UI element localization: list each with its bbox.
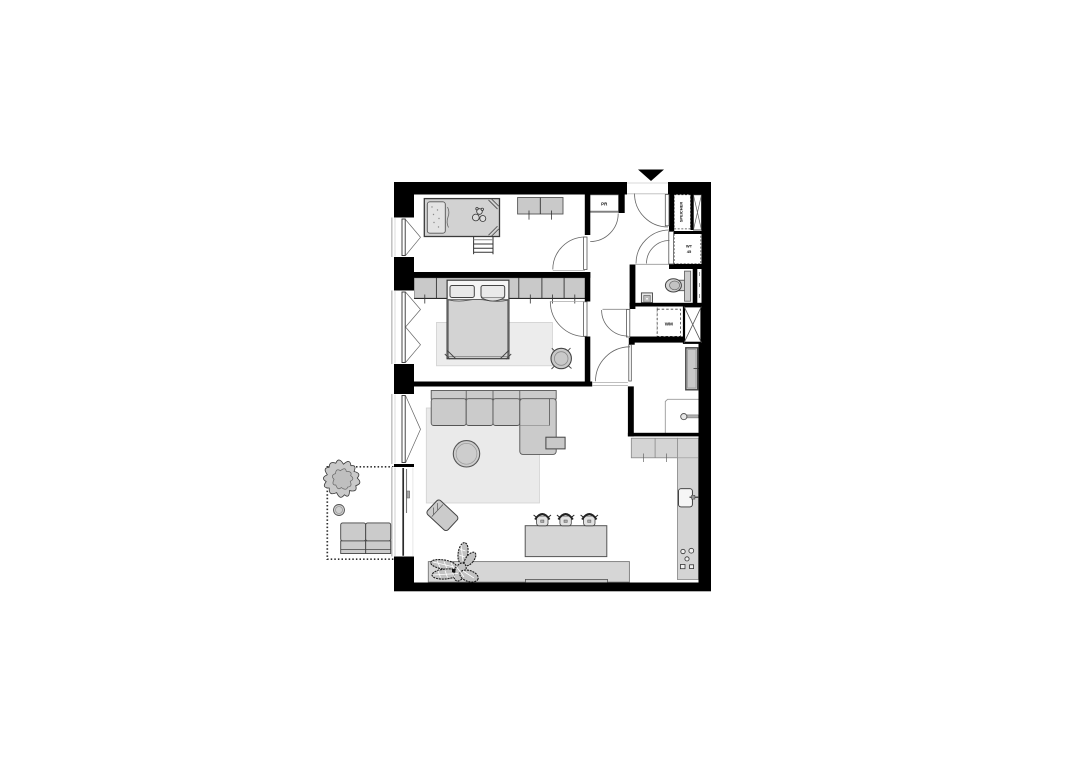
svg-text:WM: WM xyxy=(665,322,673,327)
svg-text:SPEICHER: SPEICHER xyxy=(679,202,684,223)
svg-text:WT: WT xyxy=(686,244,693,249)
svg-text:45: 45 xyxy=(687,249,692,254)
svg-text:PR: PR xyxy=(601,202,608,207)
